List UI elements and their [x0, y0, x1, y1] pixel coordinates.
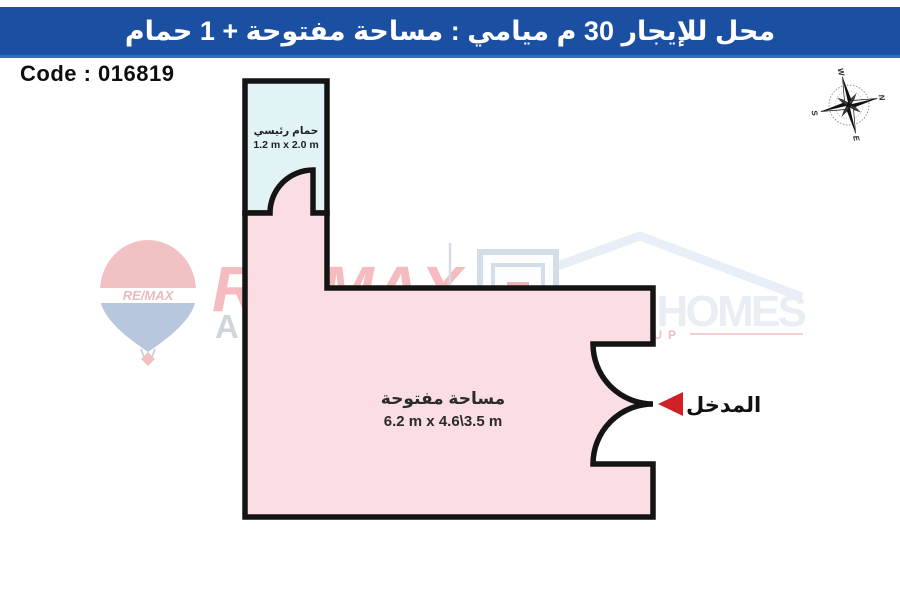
open-area — [245, 170, 653, 517]
remax-balloon-icon: RE/MAX — [100, 240, 196, 366]
compass-label-w: W — [836, 67, 847, 78]
compass-label-e: E — [851, 135, 861, 143]
open-area-label: مساحة مفتوحة — [381, 389, 505, 409]
compass-label-s: S — [809, 109, 819, 117]
bathroom-dimensions: 1.2 m x 2.0 m — [253, 139, 318, 151]
entrance-arrow-icon — [658, 392, 683, 416]
compass-icon: N E S W — [802, 60, 895, 151]
open-area-dimensions: 6.2 m x 4.6\3.5 m — [384, 413, 502, 430]
compass-label-n: N — [877, 94, 887, 102]
bathroom-label: حمام رئيسي — [254, 125, 319, 137]
balloon-text: RE/MAX — [123, 288, 175, 303]
floor-plan-canvas: RE/MAX RE/MAX AVALON NEWHOMES GROUP — [0, 0, 900, 599]
entrance-label: المدخل — [686, 394, 761, 417]
